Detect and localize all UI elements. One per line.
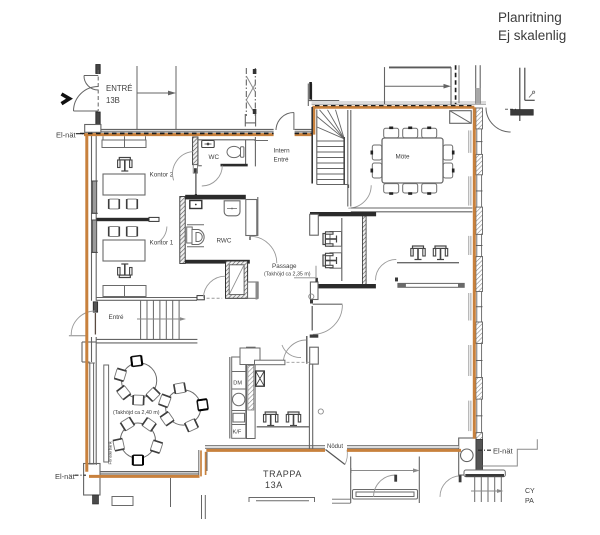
svg-text:(Takhöjd ca 2,35 m): (Takhöjd ca 2,35 m) bbox=[264, 271, 311, 277]
svg-text:PA: PA bbox=[525, 498, 534, 505]
svg-text:(Takhöjd ca 2,40 m): (Takhöjd ca 2,40 m) bbox=[113, 410, 160, 416]
svg-text:K/F: K/F bbox=[233, 430, 242, 436]
svg-text:Passage: Passage bbox=[272, 263, 297, 270]
svg-text:Intern: Intern bbox=[274, 148, 291, 155]
svg-text:Entré: Entré bbox=[274, 157, 290, 164]
svg-text:Fönsterbänk: Fönsterbänk bbox=[108, 440, 113, 464]
svg-text:Möte: Möte bbox=[396, 154, 410, 161]
svg-text:Entré: Entré bbox=[109, 314, 125, 321]
svg-text:CY: CY bbox=[525, 488, 535, 495]
svg-text:El-nät: El-nät bbox=[56, 131, 77, 140]
svg-text:Ej skalenlig: Ej skalenlig bbox=[498, 28, 566, 43]
svg-text:El-nät: El-nät bbox=[493, 447, 514, 456]
svg-text:13B: 13B bbox=[106, 96, 120, 105]
svg-text:RWC: RWC bbox=[217, 238, 232, 245]
svg-text:ENTRÉ: ENTRÉ bbox=[106, 84, 132, 93]
svg-text:Kontor 2: Kontor 2 bbox=[150, 172, 174, 179]
svg-text:TRAPPA: TRAPPA bbox=[263, 469, 302, 479]
svg-text:Planritning: Planritning bbox=[498, 10, 562, 25]
svg-text:WC: WC bbox=[209, 154, 220, 161]
svg-text:DM: DM bbox=[233, 381, 242, 387]
svg-text:13A: 13A bbox=[265, 480, 283, 490]
svg-text:El-nät: El-nät bbox=[55, 472, 76, 481]
svg-text:Kontor 1: Kontor 1 bbox=[150, 240, 174, 247]
svg-text:Nödut: Nödut bbox=[327, 444, 343, 450]
